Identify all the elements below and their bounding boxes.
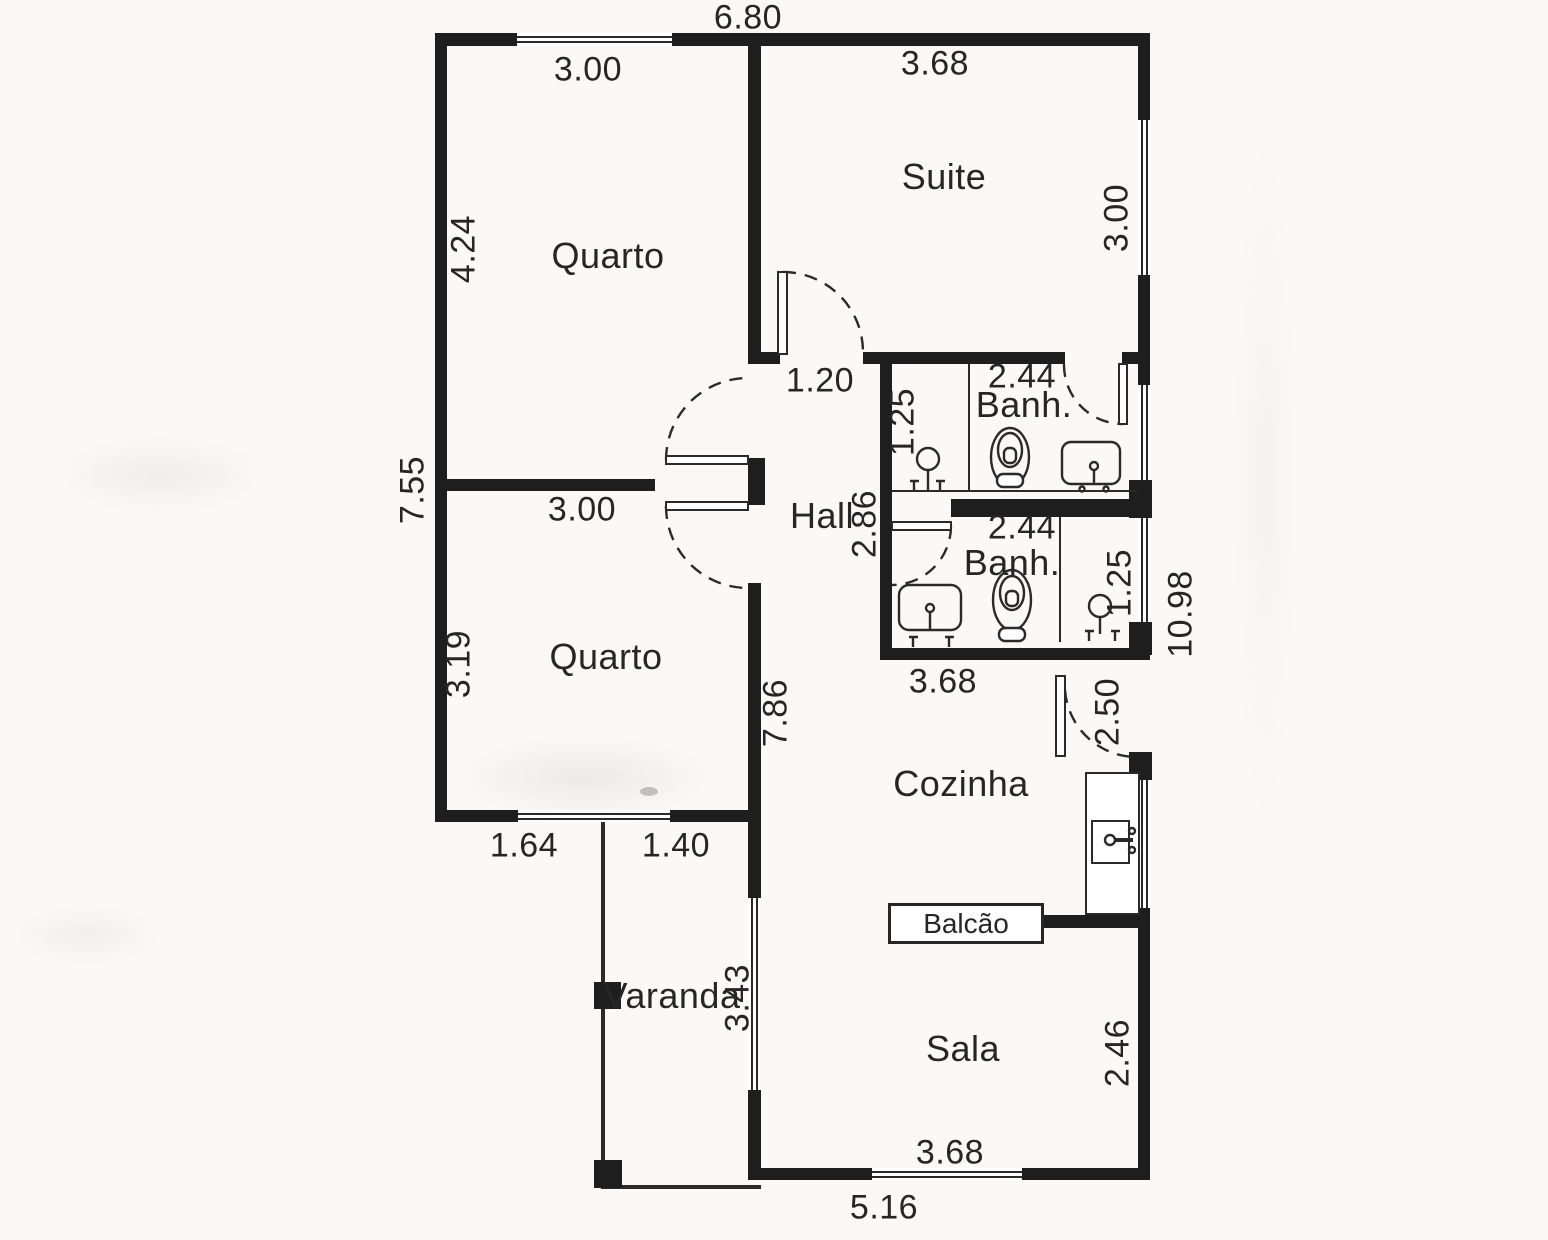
door-arc-suite xyxy=(783,272,863,352)
dim-hall-height: 2.86 xyxy=(846,490,885,558)
door-leaf-banh2 xyxy=(892,522,951,530)
dim-varanda-height: 3.43 xyxy=(719,964,758,1032)
wall-central-upper xyxy=(748,33,761,363)
dim-left-height: 7.55 xyxy=(394,456,433,524)
dim-quarto2-sidewall: 7.86 xyxy=(757,679,796,747)
dim-hall-entry: 1.20 xyxy=(786,362,854,401)
door-leaf-cozinha xyxy=(1056,676,1065,756)
room-label-quarto1: Quarto xyxy=(551,235,664,277)
dim-top-width: 6.80 xyxy=(714,0,782,38)
window-suite-right xyxy=(1138,120,1150,275)
doors-and-fixtures-layer xyxy=(0,0,1548,1240)
floor-plan: Balcão xyxy=(0,0,1548,1240)
dim-bottom-width: 5.16 xyxy=(850,1189,918,1228)
room-label-quarto2: Quarto xyxy=(549,636,662,678)
toilet-icon xyxy=(991,428,1029,487)
room-label-banh1: Banh. xyxy=(976,384,1073,426)
wall-right-seg1 xyxy=(1138,33,1150,120)
dim-cozinha-door: 2.50 xyxy=(1089,678,1128,746)
door-leaf-quarto1 xyxy=(666,456,748,464)
wall-cozinha-sala xyxy=(1037,915,1150,928)
window-banh1-right xyxy=(1138,385,1150,480)
kitchen-sink-icon xyxy=(1091,820,1130,864)
dim-suite-height: 3.00 xyxy=(1098,184,1137,252)
door-leaf-suite xyxy=(778,272,787,354)
wall-right-seg2 xyxy=(1138,275,1150,385)
door-leaf-quarto2 xyxy=(666,502,748,510)
scan-smudge xyxy=(1230,120,1300,840)
door-arc-quarto1 xyxy=(666,378,748,460)
dim-sala-height: 2.46 xyxy=(1099,1019,1138,1087)
dim-banh2-depth: 1.25 xyxy=(1101,549,1140,617)
wall-sala-bottom-right xyxy=(1022,1168,1150,1180)
wall-interquarto xyxy=(435,479,655,491)
balcao-counter: Balcão xyxy=(888,903,1044,944)
room-label-suite: Suite xyxy=(902,156,987,198)
wall-varanda-sala-lower xyxy=(748,1090,761,1180)
door-leaf-banh1 xyxy=(1119,364,1127,424)
door-arc-banh2 xyxy=(892,526,951,585)
wall-banh2-bottom xyxy=(880,648,1150,660)
balcao-label: Balcão xyxy=(923,908,1009,940)
dim-right-height: 10.98 xyxy=(1162,570,1201,658)
dim-quarto2-seg-right: 1.40 xyxy=(642,827,710,866)
dim-banh2-outer: 3.68 xyxy=(909,663,977,702)
line-banh1-stall xyxy=(968,364,970,490)
wall-varanda-sala-upper xyxy=(748,822,761,898)
wall-central-junction xyxy=(748,458,765,505)
dim-quarto2-height: 3.19 xyxy=(440,630,479,698)
dim-suite-width: 3.68 xyxy=(901,45,969,84)
wall-quarto2-bottom-left xyxy=(435,810,518,822)
scan-speck xyxy=(640,787,658,796)
dim-quarto1-width: 3.00 xyxy=(554,51,622,90)
varanda-post-corner xyxy=(594,1160,622,1188)
scan-smudge xyxy=(0,900,170,970)
wall-sala-bottom-left xyxy=(755,1168,872,1180)
room-label-cozinha: Cozinha xyxy=(893,763,1029,805)
wall-left xyxy=(435,33,447,822)
door-arc-quarto2 xyxy=(666,506,748,588)
wall-suite-bottom-stub xyxy=(748,352,780,364)
dim-quarto1-height: 4.24 xyxy=(445,215,484,283)
banh1-fixtures xyxy=(910,428,1120,492)
wall-quarto2-bottom-right xyxy=(670,810,761,822)
room-label-hall: Hall xyxy=(790,495,854,537)
dim-quarto2-seg-left: 1.64 xyxy=(490,827,558,866)
wall-suite-bottom-right xyxy=(1122,352,1150,364)
scan-smudge xyxy=(40,430,280,520)
window-banh2-right xyxy=(1138,518,1150,622)
line-varanda-bottom xyxy=(601,1185,761,1189)
door-arc-banh1 xyxy=(1064,364,1123,424)
dim-sala-width: 3.68 xyxy=(916,1134,984,1173)
window-quarto1-top xyxy=(517,33,672,46)
dim-quarto2-width: 3.00 xyxy=(548,491,616,530)
room-label-banh2: Banh. xyxy=(964,542,1061,584)
wall-right-seg6 xyxy=(1138,908,1150,1180)
sink-icon xyxy=(1062,442,1120,492)
window-quarto2-bottom xyxy=(518,810,670,822)
wall-top-left xyxy=(435,33,517,46)
room-label-sala: Sala xyxy=(926,1028,1000,1070)
dim-banh1-depth: 1.25 xyxy=(884,388,923,456)
line-banh1-floor xyxy=(892,490,1138,492)
sink-icon xyxy=(899,585,961,647)
